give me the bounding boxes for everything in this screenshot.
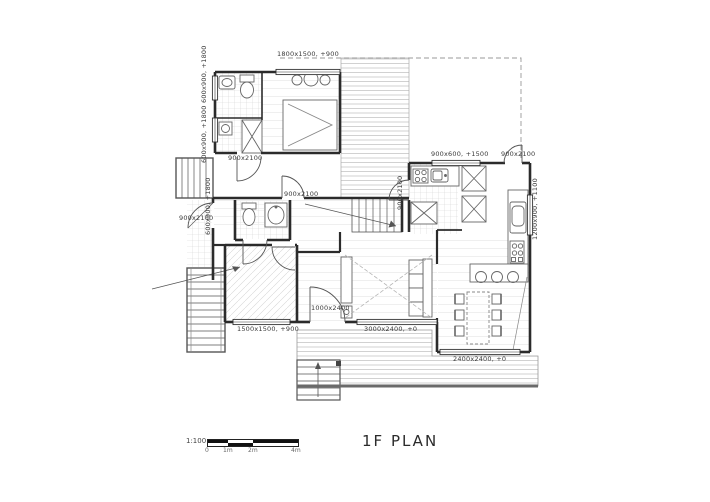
wc-sink-icon — [265, 203, 287, 227]
window — [440, 349, 520, 354]
deck-post — [336, 361, 341, 366]
dim-label-win-dining-right: 1200x900, +1100 — [532, 178, 539, 240]
bed — [283, 100, 337, 150]
dim-label-win-bath-upper: 600x900, +1800 — [201, 45, 208, 103]
dim-label-door-hall: 900x2100 — [284, 191, 318, 198]
dim-label-win-bath-lower: 600x900, +1800 — [201, 105, 208, 163]
bar-counter — [470, 264, 528, 283]
dim-label-win-bed-top: 1800x1500, +900 — [277, 51, 339, 58]
toilet-icon-1 — [240, 75, 254, 98]
washer-icon — [219, 122, 232, 135]
scale-tick-2m: 2m — [248, 447, 258, 454]
dim-label-door-deck: 900x2100 — [397, 176, 404, 210]
dining-counter — [508, 190, 528, 266]
dim-label-win-wc: 600x900, +1800 — [205, 177, 212, 235]
sofa — [409, 259, 432, 317]
page-title: 1F PLAN — [362, 432, 438, 450]
window — [432, 160, 480, 165]
window — [276, 69, 340, 74]
scale-bar-row-bottom — [208, 443, 298, 446]
dim-label-win-living: 3000x2400, +0 — [364, 326, 417, 333]
fridge — [462, 166, 486, 191]
kitchen-counter — [411, 166, 459, 186]
storage-unit-1 — [462, 196, 486, 222]
scale-tick-0: 0 — [205, 447, 209, 454]
floor-plan-drawing — [0, 0, 710, 502]
scale-bar — [207, 439, 299, 447]
dim-label-door-kitchen: 900x2100 — [501, 151, 535, 158]
dim-label-door-bedroom: 900x2100 — [228, 155, 262, 162]
window — [357, 319, 437, 324]
window — [212, 76, 217, 100]
scale-ratio: 1:100 — [186, 437, 206, 445]
bath-sink-icon — [219, 76, 235, 89]
toilet-icon-2 — [242, 203, 256, 226]
scale-seg — [208, 443, 228, 446]
dim-label-win-dining-bottom: 2400x2400, +0 — [453, 356, 506, 363]
dim-label-door-living: 1000x2400 — [311, 305, 350, 312]
window — [212, 118, 217, 142]
dim-label-win-kitchen: 900x600, +1500 — [431, 151, 489, 158]
scale-seg — [253, 443, 298, 446]
scale-tick-1m: 1m — [223, 447, 233, 454]
floorplan-canvas: 1800x1500, +900 600x900, +1800 600x900, … — [0, 0, 710, 502]
scale-tick-4m: 4m — [291, 447, 301, 454]
deck-steps — [297, 360, 341, 400]
scale-seg — [228, 443, 253, 446]
room2-floor — [226, 246, 296, 321]
window — [233, 319, 290, 324]
storage-unit-2 — [411, 202, 437, 224]
dim-label-win-room2: 1500x1500, +900 — [237, 326, 299, 333]
closet — [242, 120, 262, 153]
